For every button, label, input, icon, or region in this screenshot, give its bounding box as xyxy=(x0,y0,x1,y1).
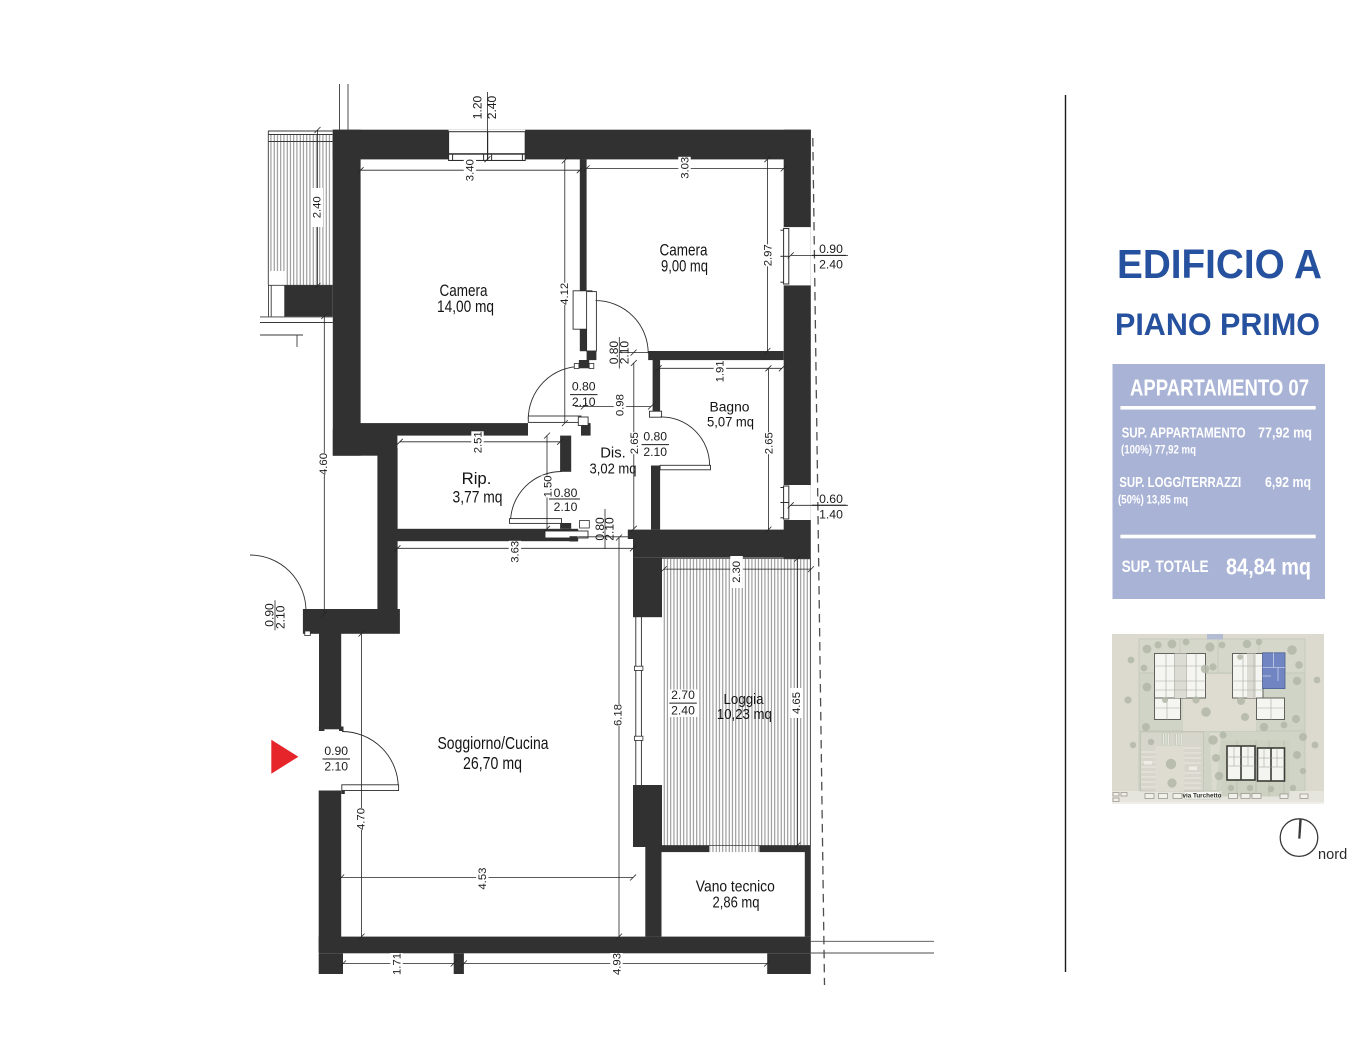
svg-text:4.93: 4.93 xyxy=(611,953,623,975)
svg-text:(100%) 77,92 mq: (100%) 77,92 mq xyxy=(1121,443,1196,456)
svg-text:6.18: 6.18 xyxy=(612,704,624,726)
svg-text:EDIFICIO A: EDIFICIO A xyxy=(1117,241,1322,287)
svg-text:2.10: 2.10 xyxy=(617,341,631,365)
svg-text:14,00 mq: 14,00 mq xyxy=(437,298,494,316)
svg-text:4.65: 4.65 xyxy=(791,692,803,714)
svg-text:0.98: 0.98 xyxy=(615,394,627,416)
svg-text:0.60: 0.60 xyxy=(819,492,843,506)
svg-text:0.80: 0.80 xyxy=(643,430,667,444)
svg-text:9,00 mq: 9,00 mq xyxy=(661,257,708,275)
svg-text:2.10: 2.10 xyxy=(324,760,348,774)
svg-text:1.71: 1.71 xyxy=(391,953,403,975)
svg-text:0.80: 0.80 xyxy=(572,380,596,394)
svg-text:1.91: 1.91 xyxy=(715,360,727,382)
svg-text:2.10: 2.10 xyxy=(572,395,596,409)
svg-text:77,92 mq: 77,92 mq xyxy=(1258,425,1312,442)
svg-text:2.40: 2.40 xyxy=(485,95,499,119)
svg-text:0.90: 0.90 xyxy=(324,744,348,758)
svg-text:2.40: 2.40 xyxy=(312,196,324,218)
svg-text:0.90: 0.90 xyxy=(819,242,843,256)
svg-text:2,86 mq: 2,86 mq xyxy=(713,895,760,912)
svg-text:84,84 mq: 84,84 mq xyxy=(1226,553,1311,579)
svg-text:2.10: 2.10 xyxy=(274,605,288,629)
svg-text:via Turchetto: via Turchetto xyxy=(1182,793,1221,800)
svg-text:3,02 mq: 3,02 mq xyxy=(590,462,637,478)
svg-text:3.63: 3.63 xyxy=(510,541,522,563)
svg-text:nord: nord xyxy=(1318,847,1347,863)
svg-text:1.20: 1.20 xyxy=(471,95,485,119)
svg-text:5,07 mq: 5,07 mq xyxy=(707,415,754,431)
svg-text:2.10: 2.10 xyxy=(554,500,578,514)
svg-text:2.97: 2.97 xyxy=(763,244,775,266)
svg-text:Soggiorno/Cucina: Soggiorno/Cucina xyxy=(438,733,549,753)
svg-text:2.70: 2.70 xyxy=(671,688,695,702)
svg-text:Vano tecnico: Vano tecnico xyxy=(696,879,775,896)
svg-text:4.60: 4.60 xyxy=(318,453,330,475)
svg-text:2.40: 2.40 xyxy=(819,258,843,272)
svg-text:2.10: 2.10 xyxy=(603,517,617,541)
svg-text:SUP. APPARTAMENTO: SUP. APPARTAMENTO xyxy=(1122,425,1246,442)
svg-text:1.40: 1.40 xyxy=(819,508,843,522)
svg-text:Rip.: Rip. xyxy=(462,469,492,488)
svg-text:6,92 mq: 6,92 mq xyxy=(1265,474,1311,491)
svg-text:APPARTAMENTO 07: APPARTAMENTO 07 xyxy=(1130,375,1309,401)
svg-text:4.12: 4.12 xyxy=(559,283,571,305)
svg-text:2.40: 2.40 xyxy=(671,704,695,718)
svg-text:SUP. LOGG/TERRAZZI: SUP. LOGG/TERRAZZI xyxy=(1119,474,1241,491)
svg-text:Dis.: Dis. xyxy=(600,446,625,462)
svg-text:10,23 mq: 10,23 mq xyxy=(717,707,772,723)
svg-text:3.40: 3.40 xyxy=(465,159,477,181)
svg-text:2.51: 2.51 xyxy=(472,431,484,453)
svg-text:3,77 mq: 3,77 mq xyxy=(453,488,503,507)
svg-text:Loggia: Loggia xyxy=(724,692,765,708)
svg-text:Bagno: Bagno xyxy=(710,400,750,416)
svg-text:2.65: 2.65 xyxy=(629,432,641,454)
svg-text:4.70: 4.70 xyxy=(355,808,367,830)
svg-text:2.30: 2.30 xyxy=(731,561,743,583)
svg-text:PIANO PRIMO: PIANO PRIMO xyxy=(1115,306,1320,342)
svg-text:2.10: 2.10 xyxy=(643,445,667,459)
svg-text:SUP. TOTALE: SUP. TOTALE xyxy=(1122,557,1209,576)
svg-text:4.53: 4.53 xyxy=(477,868,489,890)
svg-text:(50%) 13,85 mq: (50%) 13,85 mq xyxy=(1118,494,1188,507)
svg-text:2.65: 2.65 xyxy=(764,432,776,454)
svg-text:0.80: 0.80 xyxy=(554,486,578,500)
svg-text:1.50: 1.50 xyxy=(542,475,554,497)
svg-text:3.03: 3.03 xyxy=(679,157,691,179)
svg-text:26,70 mq: 26,70 mq xyxy=(463,753,522,773)
